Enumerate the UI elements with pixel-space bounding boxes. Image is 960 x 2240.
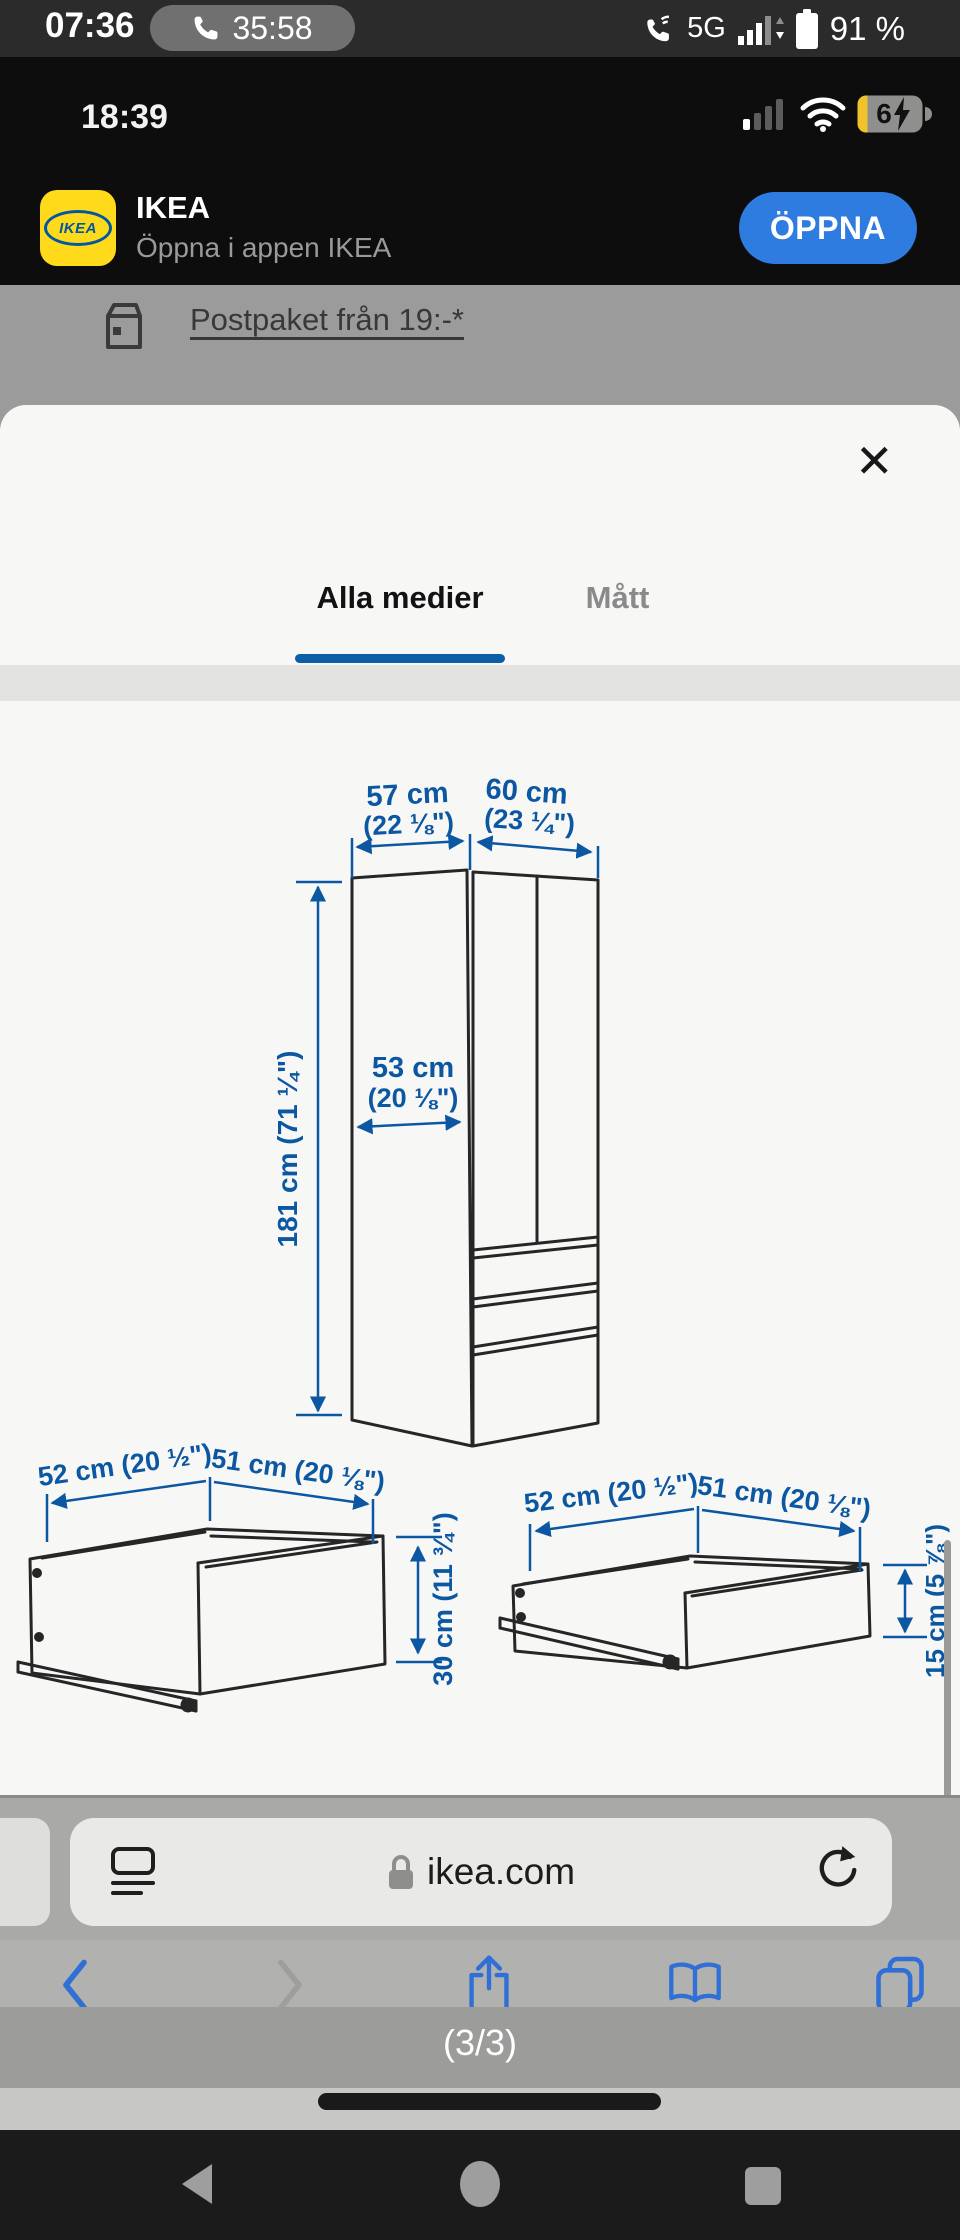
cabinet-height-label: 181 cm (71 ¼") (272, 1051, 303, 1248)
large-drawer-height-label: 30 cm (11 ¾") (428, 1512, 458, 1685)
sheet-divider-band (0, 665, 960, 701)
android-status-icons: 5G 91 % (641, 0, 905, 57)
close-icon[interactable]: ✕ (855, 438, 894, 484)
dimension-labels: 57 cm (22 ⅛") 60 cm (23 ¼") 53 cm (20 ⅛"… (36, 773, 950, 1686)
bookmarks-icon[interactable] (667, 1960, 723, 2006)
url-text: ikea.com (427, 1851, 575, 1893)
large-drawer-drawing (18, 1529, 385, 1711)
wifi-calling-icon (641, 12, 675, 46)
call-duration: 35:58 (232, 10, 312, 47)
wifi-icon (800, 96, 846, 132)
ios-clock: 18:39 (81, 98, 168, 137)
back-button[interactable] (53, 1958, 97, 2012)
ios-status-icons: 6 (743, 94, 932, 134)
app-banner-title: IKEA (136, 190, 210, 226)
large-drawer-depth-label: 51 cm (20 ⅛") (210, 1443, 387, 1497)
cabinet-width-right-in: (23 ¼") (483, 803, 576, 839)
small-drawer-drawing (500, 1556, 870, 1669)
cabinet-inner-width-cm: 53 cm (372, 1052, 454, 1084)
forward-button[interactable] (268, 1958, 312, 2012)
android-nav-bar (0, 2130, 960, 2240)
page-format-icon[interactable] (110, 1846, 158, 1896)
ios-cellular-icon (743, 97, 790, 131)
previous-tab-peek[interactable] (0, 1818, 50, 1926)
reload-icon[interactable] (814, 1844, 862, 1896)
address-bar[interactable]: ikea.com (70, 1818, 892, 1926)
network-type-label: 5G (687, 12, 726, 45)
battery-icon (796, 9, 818, 49)
nav-home-button[interactable] (458, 2160, 502, 2208)
cabinet-inner-width-in: (20 ⅛") (368, 1083, 459, 1113)
tabs-icon[interactable] (874, 1955, 926, 2015)
app-banner-subtitle: Öppna i appen IKEA (136, 232, 391, 264)
small-drawer-depth-label: 51 cm (20 ⅛") (696, 1470, 873, 1524)
nav-recents-button[interactable] (744, 2166, 782, 2206)
page-count-label: (3/3) (0, 2022, 960, 2064)
android-status-bar: 07:36 35:58 5G (0, 0, 960, 57)
ikea-logo: IKEA (44, 210, 112, 246)
sheet-scrollbar[interactable] (944, 1540, 951, 1815)
phone-screen: 07:36 35:58 5G (0, 0, 960, 2240)
lock-icon (387, 1853, 415, 1891)
open-in-app-button[interactable]: ÖPPNA (739, 192, 917, 264)
wardrobe-drawing (352, 870, 598, 1446)
phone-icon (192, 14, 220, 42)
android-clock: 07:36 (45, 6, 135, 46)
tab-alla-medier[interactable]: Alla medier (295, 568, 505, 628)
cellular-signal-icon (738, 12, 784, 46)
ongoing-call-chip[interactable]: 35:58 (150, 5, 355, 51)
tab-matt[interactable]: Mått (555, 568, 680, 628)
ios-battery-level: 6 (876, 98, 892, 129)
cabinet-width-left-in: (22 ⅛") (362, 807, 454, 842)
ikea-app-icon: IKEA (40, 190, 116, 266)
home-indicator[interactable] (318, 2093, 661, 2110)
active-tab-indicator (295, 654, 505, 663)
dimensions-diagram: 57 cm (22 ⅛") 60 cm (23 ¼") 53 cm (20 ⅛"… (0, 701, 960, 1795)
package-icon (96, 299, 150, 353)
ios-battery-icon: 6 (856, 94, 932, 134)
nav-back-button[interactable] (178, 2162, 216, 2206)
battery-percent-label: 91 % (830, 10, 905, 48)
postpaket-link[interactable]: Postpaket från 19:-* (190, 302, 464, 338)
